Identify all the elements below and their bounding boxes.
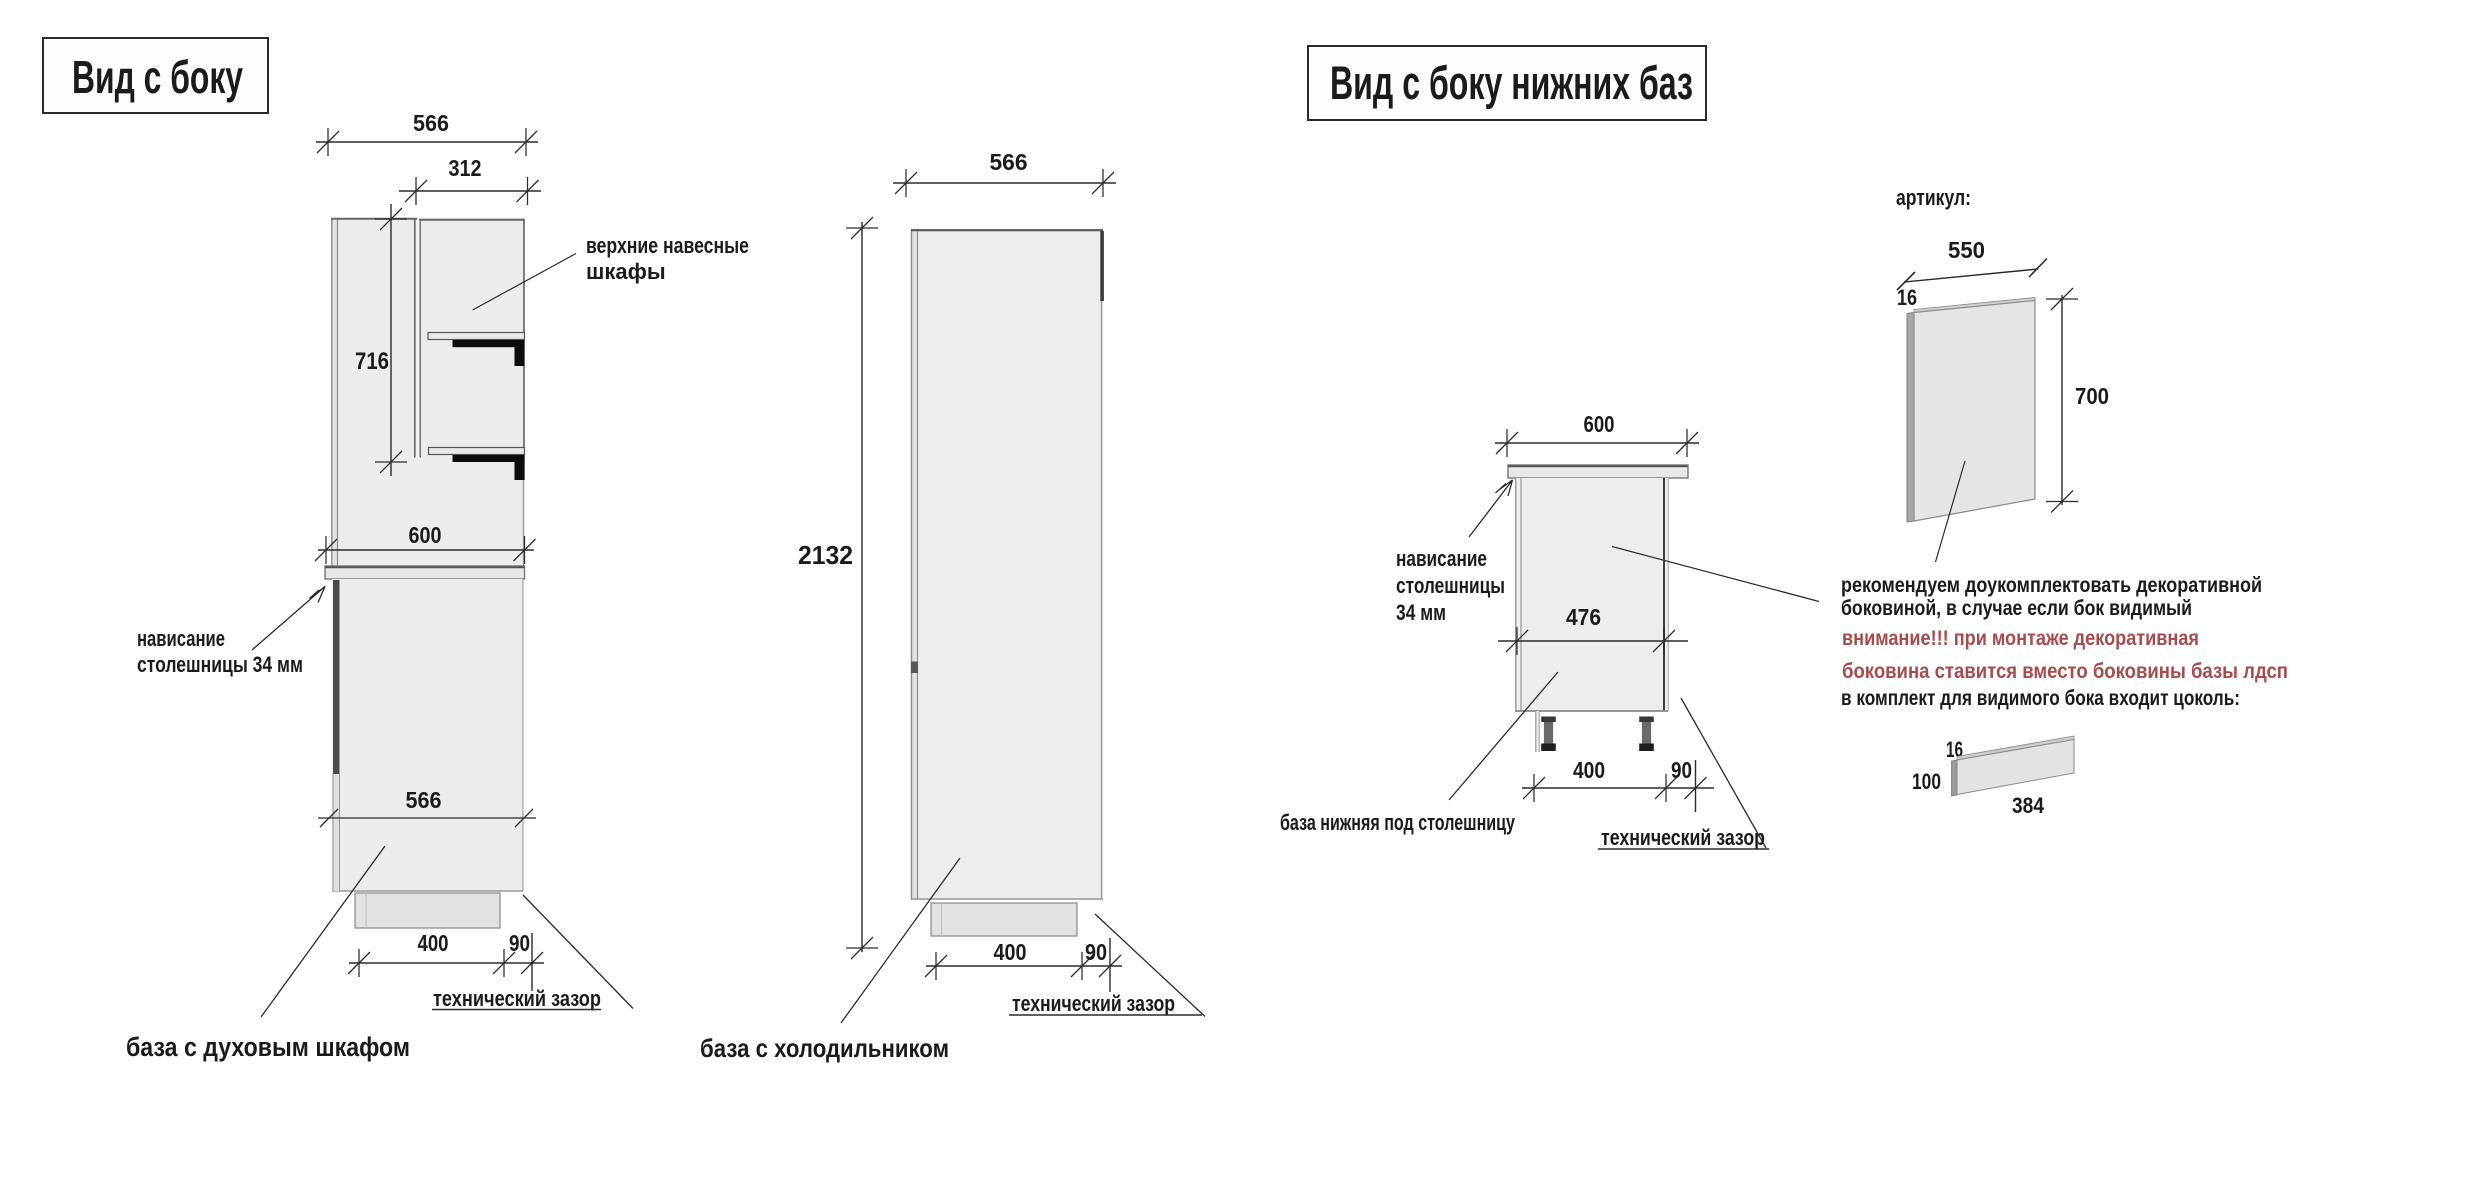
svg-text:16: 16 — [1897, 285, 1917, 310]
svg-text:550: 550 — [1948, 237, 1985, 263]
svg-text:технический зазор: технический зазор — [1601, 825, 1765, 850]
svg-text:внимание!!! при монтаже декора: внимание!!! при монтаже декоративная — [1842, 627, 2199, 650]
svg-text:шкафы: шкафы — [586, 259, 666, 284]
svg-text:верхние навесные: верхние навесные — [586, 233, 749, 258]
svg-text:400: 400 — [994, 939, 1027, 965]
svg-text:566: 566 — [413, 110, 449, 136]
svg-text:нависание: нависание — [1396, 546, 1487, 571]
svg-text:Вид с боку: Вид с боку — [72, 51, 243, 103]
svg-text:400: 400 — [1573, 757, 1605, 783]
svg-text:566: 566 — [406, 787, 442, 813]
svg-text:90: 90 — [509, 930, 530, 956]
svg-text:база с холодильником: база с холодильником — [700, 1033, 949, 1063]
svg-text:база с духовым шкафом: база с духовым шкафом — [126, 1032, 410, 1062]
svg-text:100: 100 — [1912, 769, 1941, 794]
svg-text:столешницы 34 мм: столешницы 34 мм — [137, 652, 303, 677]
svg-text:600: 600 — [409, 522, 442, 548]
svg-text:в комплект для видимого бока в: в комплект для видимого бока входит цоко… — [1841, 687, 2240, 710]
svg-text:600: 600 — [1584, 411, 1615, 437]
svg-text:столешницы: столешницы — [1396, 573, 1505, 598]
svg-text:384: 384 — [2012, 793, 2045, 818]
svg-text:нависание: нависание — [137, 626, 225, 651]
svg-text:90: 90 — [1671, 757, 1692, 783]
svg-text:566: 566 — [990, 149, 1028, 175]
svg-text:90: 90 — [1085, 939, 1107, 965]
svg-text:Вид с боку нижних баз: Вид с боку нижних баз — [1330, 56, 1693, 109]
svg-text:716: 716 — [355, 348, 389, 375]
svg-text:артикул:: артикул: — [1896, 185, 1971, 210]
svg-text:рекомендуем доукомплектовать д: рекомендуем доукомплектовать декоративно… — [1841, 574, 2262, 597]
svg-text:400: 400 — [418, 930, 449, 956]
svg-text:2132: 2132 — [798, 540, 853, 570]
svg-text:34 мм: 34 мм — [1396, 600, 1446, 625]
svg-text:476: 476 — [1566, 604, 1601, 630]
svg-text:700: 700 — [2075, 383, 2109, 409]
svg-text:312: 312 — [449, 155, 482, 181]
svg-text:база нижняя под столешницу: база нижняя под столешницу — [1280, 810, 1516, 835]
svg-text:технический зазор: технический зазор — [433, 986, 601, 1011]
svg-text:технический зазор: технический зазор — [1012, 991, 1175, 1016]
svg-text:боковиной, в случае если бок в: боковиной, в случае если бок видимый — [1841, 597, 2192, 620]
svg-text:боковина ставится вместо боков: боковина ставится вместо боковины базы л… — [1842, 660, 2288, 683]
